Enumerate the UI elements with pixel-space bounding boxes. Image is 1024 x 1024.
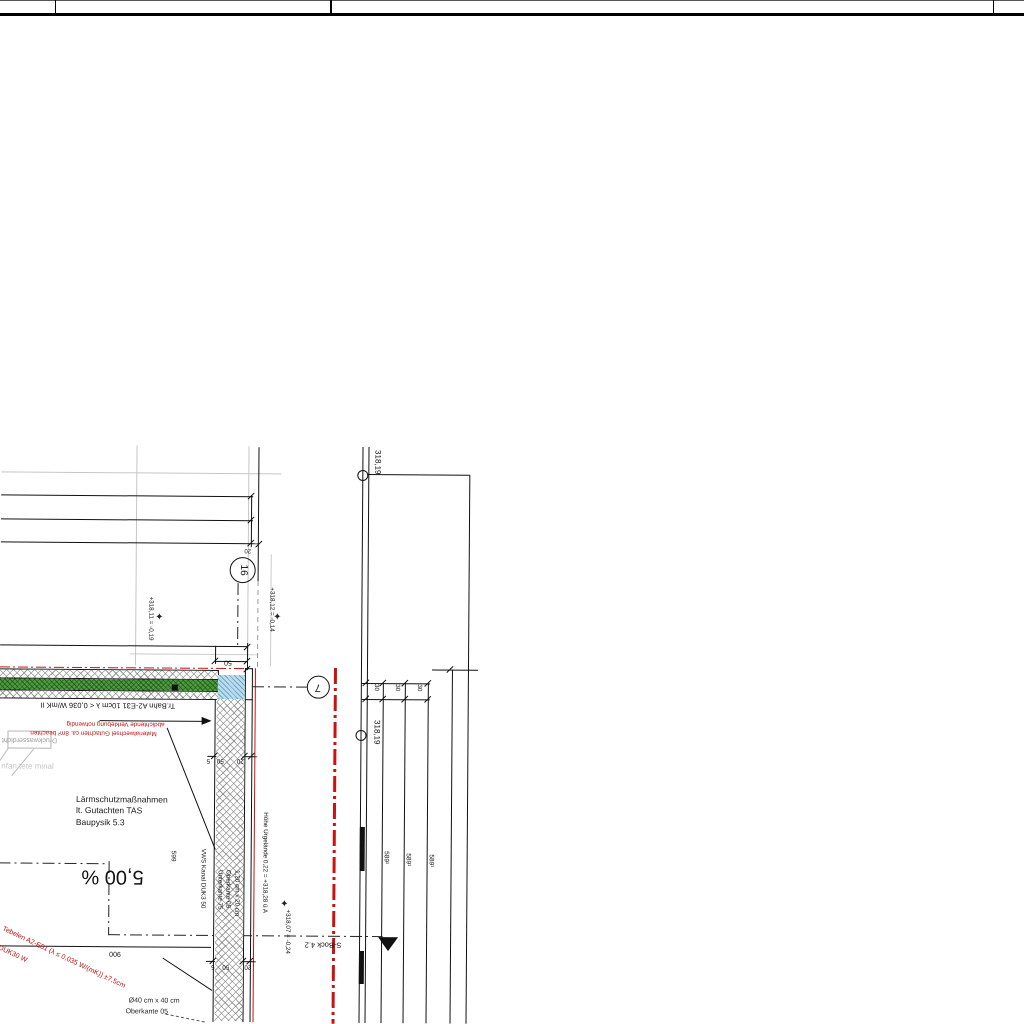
wall-column-label: 1,20 cm x 20 cm Oberkante 05 Unterkante … [215, 870, 241, 916]
blue-border-r [245, 668, 246, 699]
footing-size-label: Ø40 cm x 40 cm [129, 997, 180, 1005]
green-arrow-square [172, 685, 178, 691]
level-bold-seg2 [359, 951, 364, 984]
floor-top-line [0, 644, 247, 647]
grid-gray-h2 [130, 653, 258, 655]
section-label: S-Bock 4.2 [305, 941, 342, 949]
level-599: 599 [169, 851, 176, 862]
level-589-a: 589¹ [382, 851, 389, 864]
ramp-line-1 [1, 494, 253, 497]
slope-dashdot-h2 [108, 934, 383, 937]
wall-dim-20a: 20 [237, 757, 244, 764]
level-589-c: 589¹ [427, 854, 434, 867]
marker-16-label: 16 [237, 565, 248, 576]
wall-red-seal [253, 668, 257, 1022]
slope-label: 5,00 % [81, 865, 143, 886]
ramp-line-3 [1, 541, 259, 544]
ramp-edge-dash [257, 581, 259, 669]
layer-blue-block [218, 675, 245, 699]
grid-gray-h1 [1, 471, 281, 474]
band-border-r2 [252, 668, 253, 699]
slope-dashdot-h1 [0, 862, 109, 864]
level-top-h [367, 474, 469, 476]
spec-trennbahn: Tr.Bahn A2-E31 10cm λ < 0,036 W/mK II [40, 701, 175, 710]
datum-cross-left: ✦ [155, 612, 163, 623]
right-h-670 [432, 669, 478, 670]
wall-dim-50a: 50 [217, 757, 224, 764]
dim-900: 900 [109, 950, 121, 957]
druckwasser-label: Druckwasserdicht [2, 736, 57, 744]
datum-right: +318,12 = -0,14 [268, 587, 275, 632]
leader-diag-1 [167, 728, 216, 850]
laermschutz-note: Lärmschutzmaßnahmen lt. Gutachten TAS Ba… [76, 794, 168, 829]
level-node-a [357, 470, 368, 481]
level-318-19-b: 318,19 [372, 720, 381, 745]
level-bold-seg1 [360, 827, 365, 871]
level-589-b: 589¹ [404, 853, 411, 866]
layer-hatch-bottom [0, 690, 218, 699]
right-edge-v [465, 475, 470, 1024]
boundary-red-bold [331, 668, 336, 1024]
axis-dashdot-16 [237, 583, 238, 646]
vws-kanal-label: VWS Kanal DUK3 50 [199, 849, 206, 909]
dim30-line-b [362, 699, 430, 700]
dim-30-c: 30 [415, 684, 422, 691]
layer-hatch-top [0, 669, 218, 679]
leader-diag-2 [162, 958, 212, 991]
dim-30-b: 30 [393, 684, 400, 691]
wall-insulation-hatch [215, 699, 245, 1021]
faint-ghost-text: nfan tete minal [1, 762, 54, 771]
dim-20-top: 20 [244, 547, 251, 553]
red-note-line1: abdichtende Verklebung notwendig [67, 720, 165, 727]
footing-okante-label: Oberkante 05 [126, 1008, 168, 1016]
section-detail-drawing: ✦✦✦Lärmschutzmaßnahmen lt. Gutachten TAS… [0, 0, 1024, 1024]
gray-leader-2 [0, 748, 9, 761]
wall-dim-50b: 50 [222, 963, 229, 970]
datum-cross-low: ✦ [280, 899, 288, 910]
right-v-452 [449, 670, 452, 1024]
section-arrow [378, 937, 398, 951]
dim-50: 50 [224, 658, 232, 665]
grid-gray-v1 [135, 445, 138, 665]
red-note-arrowhead [202, 717, 212, 725]
red-note-line2: Materialwechsel Gutachten ca. 8m² beacht… [30, 728, 156, 735]
red-diag-spec2: DUK30 W [0, 944, 28, 964]
dim-30-a: 30 [372, 684, 379, 691]
layer-green [0, 678, 218, 691]
level-318-19-a: 318,19 [373, 450, 382, 475]
wall-dim-5b: 5 [211, 963, 215, 970]
level-node-b [355, 730, 366, 741]
ramp-edge-v [258, 447, 260, 581]
wall-dim-5a: 5 [207, 757, 211, 764]
marker7-leader [252, 686, 307, 687]
ramp-line-2 [1, 518, 253, 521]
datum-low: +318,07 = -0,24 [283, 909, 290, 954]
marker-7-label: 7 [315, 681, 321, 693]
hoehe-urgelaende: Höhe Urgelände 0,22 = +318,28 ü A [261, 812, 268, 913]
drawing-sheet: ✦✦✦Lärmschutzmaßnahmen lt. Gutachten TAS… [0, 0, 1024, 1024]
datum-left: +318,11 = -0,19 [147, 596, 154, 640]
wall-dim-20b: 20 [244, 963, 251, 970]
